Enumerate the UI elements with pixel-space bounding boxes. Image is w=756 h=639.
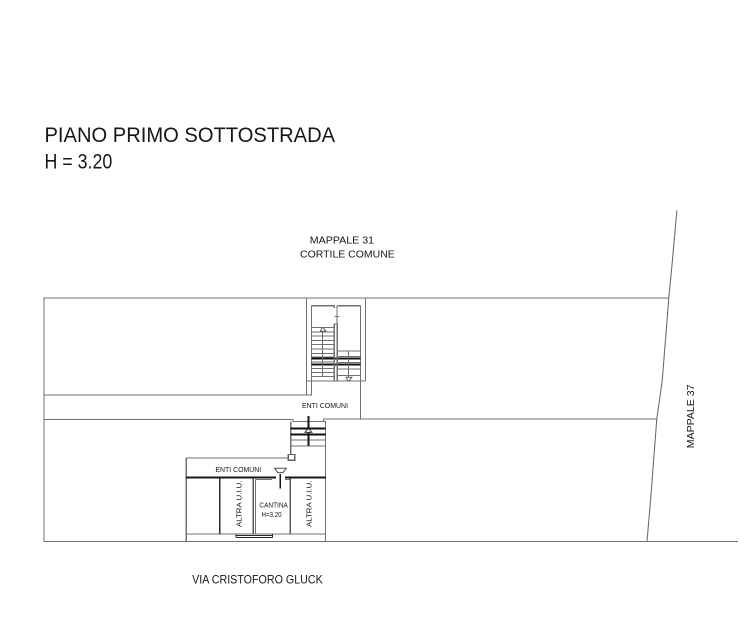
- svg-text:PIANO PRIMO SOTTOSTRADA: PIANO PRIMO SOTTOSTRADA: [45, 123, 336, 147]
- svg-text:VIA CRISTOFORO GLUCK: VIA CRISTOFORO GLUCK: [192, 572, 323, 586]
- svg-text:ALTRA U.I.U.: ALTRA U.I.U.: [235, 481, 244, 528]
- svg-text:ALTRA U.I.U.: ALTRA U.I.U.: [305, 481, 314, 528]
- svg-text:MAPPALE 37: MAPPALE 37: [686, 384, 697, 448]
- svg-text:ENTI COMUNI: ENTI COMUNI: [302, 401, 348, 410]
- svg-text:CORTILE COMUNE: CORTILE COMUNE: [300, 249, 395, 260]
- svg-text:H = 3.20: H = 3.20: [45, 149, 113, 173]
- svg-text:ENTI COMUNI: ENTI COMUNI: [215, 465, 261, 474]
- svg-text:CANTINA: CANTINA: [259, 501, 288, 510]
- svg-text:MAPPALE 31: MAPPALE 31: [310, 236, 375, 247]
- svg-text:H=3.20: H=3.20: [262, 510, 282, 519]
